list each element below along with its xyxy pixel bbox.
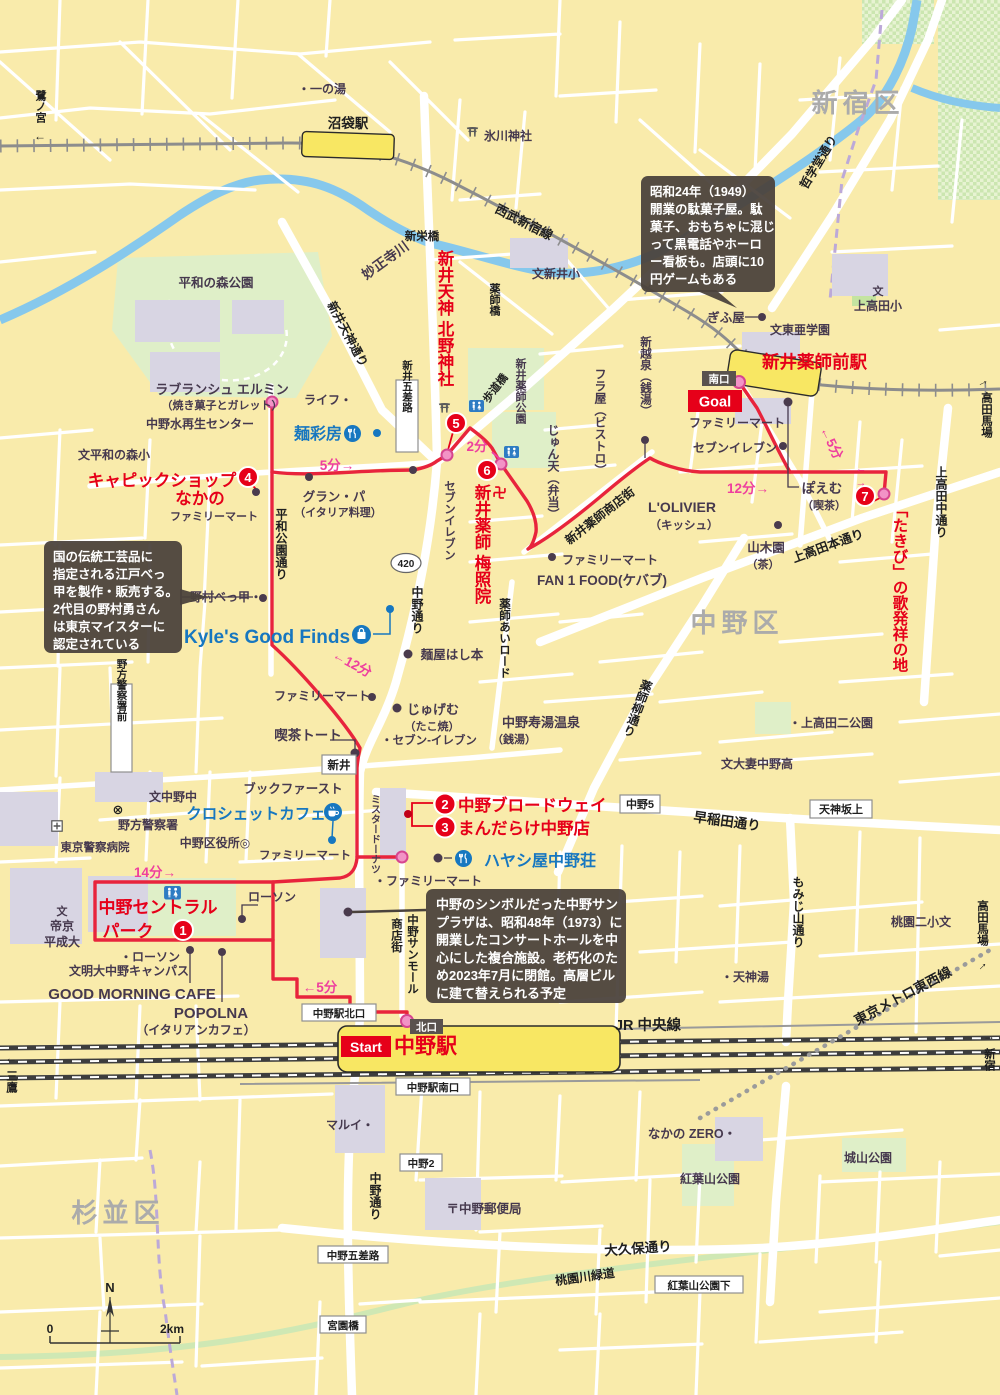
nakano-dori-label: 中野通り xyxy=(410,585,424,634)
svg-text:3: 3 xyxy=(441,820,448,835)
svg-text:4: 4 xyxy=(244,470,252,485)
svg-text:心にした複合施設。老朽化のた: 心にした複合施設。老朽化のた xyxy=(436,950,618,965)
stop4-name2: なかの xyxy=(175,489,225,508)
popolna-label: POPOLNA xyxy=(174,1005,248,1022)
svg-text:2代目の野村勇さん: 2代目の野村勇さん xyxy=(53,602,160,617)
sign-miyazonobashi: 宮園橋 xyxy=(327,1319,359,1332)
mister-donut-label: ミスタードーナツ xyxy=(369,794,381,874)
familymart-fan-label: ファミリーマート xyxy=(562,553,658,567)
kamitakada-nakadori-label: 上高田中通り xyxy=(934,465,948,538)
time-5-6: 2分 xyxy=(466,439,488,454)
heiwanomori-park-label: 平和の森公園 xyxy=(178,275,253,290)
toto-label: 喫茶トート xyxy=(274,727,342,743)
arrow-right2: → xyxy=(983,1029,995,1043)
north-exit-box: 北口 xyxy=(416,1021,437,1034)
ichinoyu-label: ・一の湯 xyxy=(298,81,346,96)
svg-text:国の伝統工芸品に: 国の伝統工芸品に xyxy=(53,549,153,564)
momozono-nisho-label: 桃園二小文 xyxy=(891,914,952,929)
wc-icon xyxy=(504,446,519,458)
coffee-icon xyxy=(324,803,342,821)
marui-label: マルイ・ xyxy=(326,1118,374,1132)
sign-nakano-gosaro: 中野五差路 xyxy=(327,1249,380,1262)
jr-chuo-label: JR 中央線 xyxy=(615,1016,682,1034)
yakushibashi-label: 薬師橋 xyxy=(488,282,501,317)
kyles-label: Kyle's Good Finds xyxy=(184,627,350,648)
mizusaisei-label: 中野水再生センター xyxy=(146,416,254,431)
hayashiya-label: ハヤシ屋中野荘 xyxy=(484,851,596,870)
svg-text:指定される江戸べっ: 指定される江戸べっ xyxy=(53,567,166,582)
jugemu-label: じゅげむ xyxy=(407,702,459,717)
meidai-label: 文明大中野キャンパス xyxy=(69,963,189,978)
sign-nakano-minamiguchi: 中野駅南口 xyxy=(407,1081,460,1094)
nakano-zero-label: なかの ZERO・ xyxy=(648,1127,736,1141)
svg-text:め2023年7月に閉館。高層ビル: め2023年7月に閉館。高層ビル xyxy=(436,968,615,983)
svg-text:プラザは、昭和48年（1973）に: プラザは、昭和48年（1973）に xyxy=(436,915,622,930)
stop4-name: キャピックショップ xyxy=(88,470,237,490)
postoffice-label: 〒中野郵便局 xyxy=(446,1201,521,1216)
south-exit-box: 南口 xyxy=(709,373,730,386)
momijiyama-dori-label: もみじ山通り xyxy=(791,876,805,948)
lolivier-sub: （キッシュ） xyxy=(650,518,719,532)
arrow-left2: ← xyxy=(5,1051,17,1065)
svg-text:認定されている: 認定されている xyxy=(53,637,140,652)
saginomiya-label: 鷺ノ宮 xyxy=(34,89,47,124)
arai-sho-label: 文新井小 xyxy=(532,266,580,281)
gifuya-label: ぎふ屋 xyxy=(707,310,745,325)
shinkoshiizumi-label: 新越泉（銭湯） xyxy=(639,335,653,416)
svg-text:甲を製作・販売する。: 甲を製作・販売する。 xyxy=(53,584,178,599)
stop3-name: まんだらけ中野店 xyxy=(458,818,590,838)
compass-n: N xyxy=(105,1280,114,1295)
scale-2km: 2km xyxy=(160,1322,184,1336)
svg-text:ー看板も。店頭に10: ー看板も。店頭に10 xyxy=(650,254,764,269)
sign-nogata-police-mae: 野方警察署前 xyxy=(116,659,128,723)
sign-momijiyama-shita: 紅葉山公園下 xyxy=(668,1279,731,1292)
out-arrow: ← xyxy=(856,463,867,475)
bookfirst-label: ブックファースト xyxy=(243,781,342,796)
sunmall-label: 中野サンモール xyxy=(406,913,419,994)
shopping-bag-icon xyxy=(352,625,371,644)
district-nakano: 中野区 xyxy=(690,608,783,638)
yamakien-label: 山木園 xyxy=(747,540,785,555)
teikyo-label: 帝京 xyxy=(50,918,74,933)
jugemu-sub: （たこ焼） xyxy=(405,719,460,733)
map-canvas: 1 2 3 4 5 6 7 新井 新井五差路 中野5 天神坂上 中野駅北口 中野… xyxy=(0,0,1000,1395)
life-label: ライフ・ xyxy=(304,393,352,407)
sujiyu-sub: （銭湯） xyxy=(492,732,536,746)
svg-text:2: 2 xyxy=(441,797,448,812)
crochet-label: クロシェットカフェ xyxy=(186,805,326,823)
lawson2-label: ・ローソン xyxy=(120,950,180,964)
svg-text:1: 1 xyxy=(179,923,186,938)
nogata-police-label: 野方警察署 xyxy=(118,817,178,832)
svg-text:昭和24年（1949）: 昭和24年（1949） xyxy=(650,184,754,199)
shineibashi-label: 新栄橋 xyxy=(405,229,440,243)
heiwa-koen-dori-label: 平和公園通り xyxy=(274,508,288,580)
shiroyama-park-label: 城山公園 xyxy=(844,1150,892,1165)
sujiyu-label: 中野寿湯温泉 xyxy=(502,715,581,730)
sign-nakano5: 中野5 xyxy=(626,797,654,811)
mensaibo-label: 麺彩房 xyxy=(293,424,342,443)
stop6-name: 新井薬師 梅照院 xyxy=(472,483,491,605)
wc-icon xyxy=(469,400,484,412)
arai-yakushi-park-label: 新井薬師公園 xyxy=(514,357,527,425)
sign-arai-gosaro: 新井五差路 xyxy=(401,359,413,413)
walking-map: 1 2 3 4 5 6 7 新井 新井五差路 中野5 天神坂上 中野駅北口 中野… xyxy=(0,0,1000,1395)
labranche-sub: （焼き菓子とガレット） xyxy=(162,398,283,412)
restaurant-icon xyxy=(455,850,472,867)
sign-arai: 新井 xyxy=(328,758,351,772)
junten-label: じゅん天（弁当） xyxy=(546,424,560,520)
svg-text:は東京マイスターに: は東京マイスターに xyxy=(53,619,165,634)
fan1food-label: FAN 1 FOOD(ケバブ) xyxy=(537,572,667,588)
stop5-dot xyxy=(442,450,453,461)
poem-label: ぽえむ xyxy=(802,480,843,496)
otsuma-label: 文大妻中野高 xyxy=(721,756,793,771)
mitaka-arrow-label: 三鷹 xyxy=(5,1070,18,1094)
familymart-arai-label: ファミリーマート xyxy=(274,689,370,703)
kamitakada-sho-label: 上高田小 xyxy=(854,298,902,313)
kuyakusho-label: 中野区役所◎ xyxy=(180,835,250,850)
district-shinjuku: 新宿区 xyxy=(811,88,904,118)
lolivier-label: L'OLIVIER xyxy=(648,499,716,515)
sign-nakano-kitaguchi: 中野駅北口 xyxy=(313,1007,366,1020)
svg-text:菓子、おもちゃに混じ: 菓子、おもちゃに混じ xyxy=(649,219,775,234)
time-1-2: 14分→ xyxy=(134,865,176,880)
time-4-5: 5分→ xyxy=(320,458,355,473)
route-420-shield: 420 xyxy=(398,559,415,570)
takadanobaba-label2: 高田馬場 xyxy=(976,899,989,947)
stop7-name: 「たきび」の歌発祥の地 xyxy=(891,502,910,673)
heiwanomori-sho-label: 文平和の森小 xyxy=(78,447,150,462)
police-symbol: ⊗ xyxy=(113,802,124,817)
seveneleven-vert-label: セブンイレブン xyxy=(443,480,456,561)
numabukuro-label: 沼袋駅 xyxy=(328,115,369,131)
grandpa-label: グラン・パ xyxy=(303,489,366,504)
sign-nakano2: 中野2 xyxy=(408,1157,435,1170)
momijiyama-park-label: 紅葉山公園 xyxy=(680,1171,740,1186)
nakano-chu-label: 文中野中 xyxy=(149,789,197,804)
broadway-dot xyxy=(397,852,408,863)
time-start-1: ←5分 xyxy=(303,980,338,995)
hospital-icon xyxy=(52,821,62,831)
nakano-station-label: 中野駅 xyxy=(394,1035,458,1058)
svg-text:5: 5 xyxy=(452,416,459,431)
teikyo-mon: 文 xyxy=(57,904,69,918)
arrow-left: ← xyxy=(34,129,46,143)
district-suginami: 杉並区 xyxy=(71,1198,164,1228)
nakano-dori-label2: 中野通り xyxy=(368,1171,382,1220)
yakushi-ai-road-label: 薬師あいロード xyxy=(498,597,512,678)
familymart-sunmall-label: ・ファミリーマート xyxy=(374,874,482,888)
labranche-label: ラブランシュ エルミン xyxy=(155,382,289,397)
poem-sub: （喫茶） xyxy=(802,498,846,512)
kamitakada-niko-label: ・上高田二公園 xyxy=(789,715,873,730)
svg-text:6: 6 xyxy=(483,463,490,478)
hikawa-jinja-label: 氷川神社 xyxy=(483,128,532,143)
start-box: Start xyxy=(350,1039,382,1055)
kamitakada-sho-mon: 文 xyxy=(873,284,885,298)
arai-yakushimae-label: 新井薬師前駅 xyxy=(762,352,867,372)
stop5-name: 新井天神 北野神社 xyxy=(435,249,455,388)
seveneleven-goal-label: セブンイレブン・ xyxy=(693,440,789,455)
svg-text:円ゲームもある: 円ゲームもある xyxy=(650,272,737,287)
back-arrow: → xyxy=(856,477,867,489)
familymart-kuyakusho-label: ファミリーマート xyxy=(259,849,351,862)
grandpa-sub: （イタリア料理） xyxy=(294,505,382,519)
gmc-label: GOOD MORNING CAFE xyxy=(48,986,216,1003)
stop2-name: 中野ブロードウェイ xyxy=(458,795,607,815)
svg-text:開業の駄菓子屋。駄: 開業の駄菓子屋。駄 xyxy=(650,202,763,217)
goal-box: Goal xyxy=(699,395,731,411)
police-hospital-label: 東京警察病院 xyxy=(61,840,130,854)
numabukuro-station-box xyxy=(302,131,395,159)
toagakuen-label: 文東亜学園 xyxy=(770,322,830,337)
lawson-label: ローソン xyxy=(248,890,296,904)
time-6-7: 12分→ xyxy=(727,481,769,496)
svg-text:中野のシンボルだった中野サン: 中野のシンボルだった中野サン xyxy=(436,897,618,912)
takadanobaba-label: 高田馬場 xyxy=(980,391,993,439)
shinjuku-arrow-label: 新宿 xyxy=(983,1047,996,1072)
teikyo-label2: 平成大 xyxy=(44,934,80,949)
stop1-name2: パーク xyxy=(103,922,154,941)
yamakien-sub: （茶） xyxy=(747,557,780,571)
fraya-label: フラ屋（ビストロ） xyxy=(593,368,607,476)
scale-zero: 0 xyxy=(47,1322,54,1336)
familymart-label: ファミリーマート xyxy=(170,510,258,523)
popolna-sub: （イタリアンカフェ） xyxy=(136,1022,256,1037)
stop1-name: 中野セントラル xyxy=(99,897,218,917)
svg-text:7: 7 xyxy=(861,489,868,504)
svg-text:に建て替えられる予定: に建て替えられる予定 xyxy=(436,986,566,1001)
menya-label: 麺屋はし本 xyxy=(420,647,484,662)
familymart-goal-label: ファミリーマート xyxy=(689,416,785,430)
sunmall-label2: 商店街 xyxy=(390,917,404,953)
tenjinyu-label: ・天神湯 xyxy=(721,969,769,984)
restaurant-icon xyxy=(344,425,361,442)
stop7-dot xyxy=(879,489,890,500)
svg-text:開業したコンサートホールを中: 開業したコンサートホールを中 xyxy=(436,933,618,948)
svg-text:って黒電話やホーロ: って黒電話やホーロ xyxy=(650,237,762,252)
sign-tenjin-sakaue: 天神坂上 xyxy=(819,802,863,816)
seveneleven-mid-label: ・セブン-イレブン xyxy=(381,733,477,747)
